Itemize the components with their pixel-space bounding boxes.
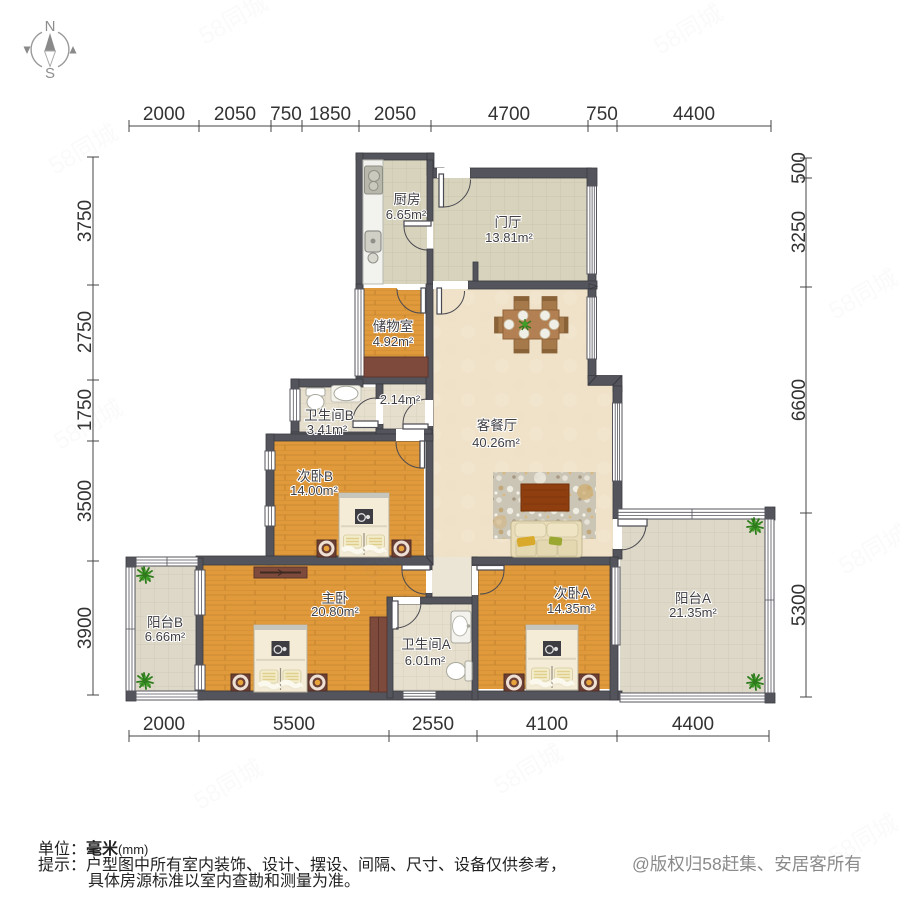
svg-text:2.14m²: 2.14m² xyxy=(380,392,421,407)
svg-text:4400: 4400 xyxy=(672,714,714,735)
svg-text:6600: 6600 xyxy=(789,379,810,421)
svg-text:58同城: 58同城 xyxy=(490,739,568,800)
svg-text:20.80m²: 20.80m² xyxy=(311,604,359,619)
svg-text:6.65m²: 6.65m² xyxy=(386,207,427,222)
svg-text:3.41m²: 3.41m² xyxy=(307,422,348,437)
svg-text:13.81m²: 13.81m² xyxy=(485,230,533,245)
svg-text:3900: 3900 xyxy=(75,607,96,649)
svg-text:6.01m²: 6.01m² xyxy=(405,653,446,668)
svg-text:2050: 2050 xyxy=(214,104,256,125)
svg-text:4100: 4100 xyxy=(526,714,568,735)
svg-text:门厅: 门厅 xyxy=(495,215,522,230)
svg-text:21.35m²: 21.35m² xyxy=(669,605,717,620)
svg-text:@版权归58赶集、安居客所有: @版权归58赶集、安居客所有 xyxy=(632,854,862,874)
svg-text:阳台B: 阳台B xyxy=(147,615,183,630)
svg-text:4400: 4400 xyxy=(673,104,715,125)
svg-text:58同城: 58同城 xyxy=(825,264,900,325)
svg-text:750: 750 xyxy=(586,104,618,125)
svg-text:5500: 5500 xyxy=(273,714,315,735)
svg-text:提示：户型图中所有室内装饰、设计、摆设、间隔、尺寸、设备仅供: 提示：户型图中所有室内装饰、设计、摆设、间隔、尺寸、设备仅供参考， xyxy=(38,856,566,874)
svg-text:58同城: 58同城 xyxy=(650,0,728,60)
svg-text:14.00m²: 14.00m² xyxy=(290,483,338,498)
svg-text:750: 750 xyxy=(270,104,302,125)
svg-text:58同城: 58同城 xyxy=(190,754,268,815)
svg-text:卫生间B: 卫生间B xyxy=(304,408,354,423)
svg-text:单位：毫米(mm): 单位：毫米(mm) xyxy=(38,839,148,858)
svg-text:2750: 2750 xyxy=(75,311,96,353)
svg-text:5300: 5300 xyxy=(789,584,810,626)
svg-text:3250: 3250 xyxy=(789,211,810,253)
svg-text:14.35m²: 14.35m² xyxy=(547,601,595,616)
svg-text:客餐厅: 客餐厅 xyxy=(477,417,518,433)
svg-text:4.92m²: 4.92m² xyxy=(373,334,414,349)
svg-text:2000: 2000 xyxy=(143,104,185,125)
svg-text:40.26m²: 40.26m² xyxy=(472,435,520,450)
svg-text:2550: 2550 xyxy=(412,714,454,735)
svg-text:储物室: 储物室 xyxy=(373,318,414,334)
svg-text:58同城: 58同城 xyxy=(195,0,273,50)
svg-text:4700: 4700 xyxy=(488,104,530,125)
svg-text:6.66m²: 6.66m² xyxy=(145,629,186,644)
svg-text:N: N xyxy=(45,18,56,35)
svg-text:58同城: 58同城 xyxy=(835,519,900,580)
svg-text:2000: 2000 xyxy=(143,714,185,735)
svg-text:500: 500 xyxy=(789,152,810,184)
svg-text:58同城: 58同城 xyxy=(825,809,900,870)
svg-text:次卧A: 次卧A xyxy=(554,586,590,601)
svg-text:1850: 1850 xyxy=(309,104,351,125)
svg-text:具体房源标准以室内查勘和测量为准。: 具体房源标准以室内查勘和测量为准。 xyxy=(88,872,360,890)
svg-text:58同城: 58同城 xyxy=(45,119,123,180)
svg-text:卫生间A: 卫生间A xyxy=(401,637,451,652)
svg-text:3750: 3750 xyxy=(75,200,96,242)
svg-text:厨房: 厨房 xyxy=(394,192,421,207)
svg-text:3500: 3500 xyxy=(75,480,96,522)
svg-text:次卧B: 次卧B xyxy=(297,469,333,484)
svg-text:2050: 2050 xyxy=(374,104,416,125)
svg-text:阳台A: 阳台A xyxy=(675,591,711,606)
